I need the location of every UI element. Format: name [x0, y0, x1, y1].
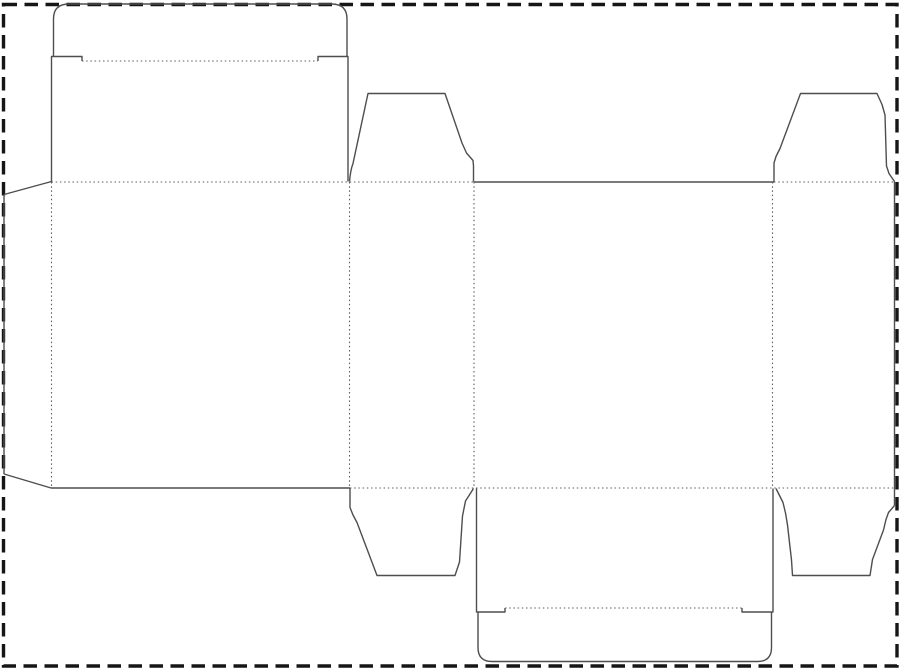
top-lid-right-side [318, 57, 348, 182]
top-dust-flap-right-outline [774, 94, 895, 182]
bottom-tuck-flap-outline [478, 612, 772, 662]
bottom-lid-right-side [742, 489, 773, 613]
top-lid-left-side [52, 57, 83, 182]
glue-tab-bottom-edge [4, 474, 51, 488]
page-border [4, 5, 898, 667]
dieline-page [0, 0, 900, 669]
glue-tab-top-edge [4, 182, 52, 195]
dieline-drawing [0, 0, 900, 669]
top-tuck-flap-outline [54, 4, 348, 57]
bottom-dust-flap-right-outline [776, 489, 895, 576]
bottom-dust-flap-left-outline [350, 488, 474, 576]
top-dust-flap-left-outline [350, 94, 474, 182]
bottom-lid-left-side [477, 489, 506, 613]
